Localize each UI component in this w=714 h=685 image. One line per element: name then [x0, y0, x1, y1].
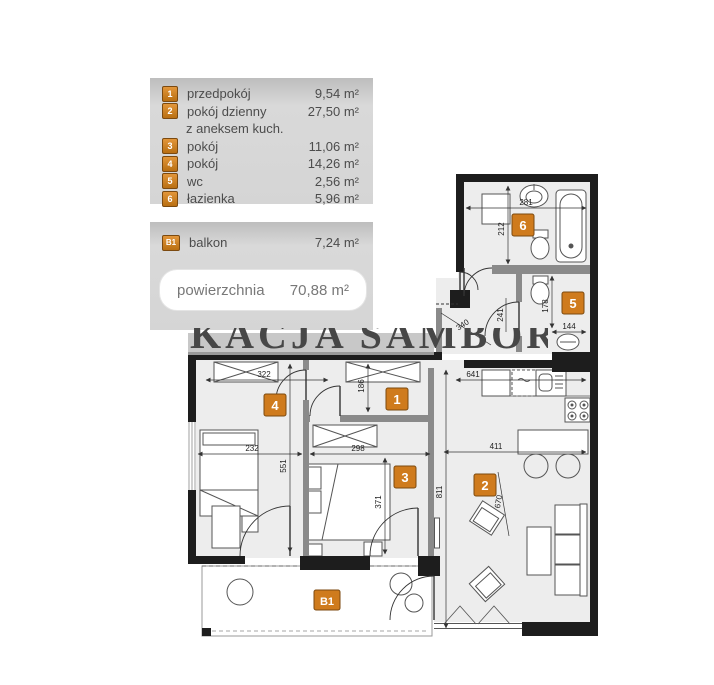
bathtub [556, 190, 586, 262]
room-marker-2: 2 [474, 474, 496, 496]
svg-text:B1: B1 [320, 596, 334, 608]
room-badge-b1: B1 [162, 235, 180, 251]
room-badge-2: 2 [162, 103, 178, 119]
room-area: 27,50 m² [287, 104, 359, 119]
window-left [188, 422, 196, 490]
svg-text:371: 371 [374, 495, 383, 509]
room-badge-3: 3 [162, 138, 178, 154]
svg-text:144: 144 [562, 322, 576, 331]
room-badge-4: 4 [162, 156, 178, 172]
room-name-note: z aneksem kuch. [186, 121, 359, 136]
floorplan-page: 1 przedpokój 9,54 m² 2 pokój dzienny 27,… [0, 0, 714, 685]
svg-text:178: 178 [541, 299, 550, 313]
room-marker-1: 1 [386, 388, 408, 410]
stool [524, 454, 548, 478]
kitchen-island [518, 430, 588, 454]
washing-machine [482, 194, 510, 224]
sofa [555, 504, 587, 596]
legend-row: 4 pokój 14,26 m² [162, 155, 359, 173]
room-marker-6: 6 [512, 214, 534, 236]
room-marker-4: 4 [264, 394, 286, 416]
bed-room4 [200, 430, 258, 516]
room-area: 11,06 m² [287, 139, 359, 154]
legend-row: 1 przedpokój 9,54 m² [162, 85, 359, 103]
svg-text:641: 641 [466, 370, 480, 379]
wardrobe [346, 362, 420, 382]
legend-row-note: z aneksem kuch. [162, 120, 359, 138]
wardrobe [313, 425, 377, 447]
room-name: pokój [187, 156, 287, 171]
coffee-table [527, 527, 551, 575]
svg-text:811: 811 [435, 485, 444, 498]
balcony-chair [405, 594, 423, 612]
svg-text:322: 322 [257, 370, 271, 379]
svg-text:212: 212 [497, 222, 506, 236]
legend-row: 3 pokój 11,06 m² [162, 138, 359, 156]
desk [212, 506, 240, 548]
room-area: 14,26 m² [287, 156, 359, 171]
stove [565, 398, 590, 422]
svg-text:232: 232 [245, 444, 259, 453]
room-badge-6: 6 [162, 191, 178, 207]
room-name: pokój dzienny [187, 104, 287, 119]
svg-text:298: 298 [351, 444, 365, 453]
svg-text:4: 4 [271, 398, 279, 413]
room-name: pokój [187, 139, 287, 154]
room-name: przedpokój [187, 86, 287, 101]
floor-plan: 281 212 178 144 641 411 811 670 322 186 … [188, 172, 650, 664]
svg-text:411: 411 [490, 442, 503, 451]
dishwasher [512, 370, 536, 396]
svg-text:3: 3 [401, 470, 408, 485]
room-marker-3: 3 [394, 466, 416, 488]
svg-text:5: 5 [569, 296, 576, 311]
chair [242, 516, 258, 532]
nightstand [364, 542, 382, 556]
tv [435, 518, 440, 548]
svg-text:1: 1 [393, 392, 400, 407]
balcony-table [227, 579, 253, 605]
svg-text:186: 186 [357, 379, 366, 393]
legend-row: 2 pokój dzienny 27,50 m² [162, 103, 359, 121]
svg-text:6: 6 [519, 218, 526, 233]
room-marker-b1: B1 [314, 590, 340, 610]
kitchen-sink [536, 370, 566, 396]
washbasin-wc [557, 334, 579, 350]
svg-text:281: 281 [519, 198, 533, 207]
room-area: 9,54 m² [287, 86, 359, 101]
svg-text:2: 2 [481, 478, 488, 493]
svg-text:241: 241 [496, 308, 505, 322]
stool [556, 454, 580, 478]
room-badge-5: 5 [162, 173, 178, 189]
room-marker-5: 5 [562, 292, 584, 314]
room-badge-1: 1 [162, 86, 178, 102]
svg-text:551: 551 [279, 459, 288, 473]
fridge [482, 370, 510, 396]
